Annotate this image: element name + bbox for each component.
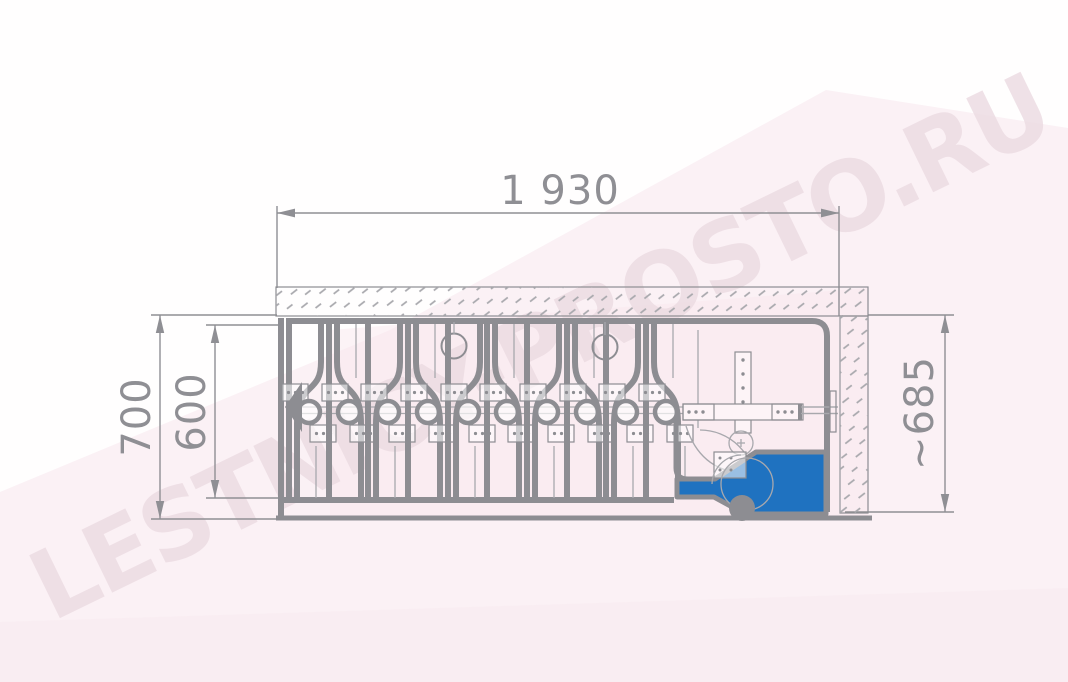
pivot-knob: [729, 495, 755, 521]
dimension-inner-height-label: 600: [169, 372, 215, 451]
pivot-plate-vertical: [735, 352, 751, 433]
drawing-canvas: LESTNICY-PROSTO.RU 1 930 700 6: [0, 0, 1068, 682]
dimension-outer-height-label: 700: [114, 377, 160, 456]
dimension-length-label: 1 930: [500, 168, 620, 214]
dimension-approx-height-label: ~685: [897, 356, 943, 470]
ladder-technical-drawing: LESTNICY-PROSTO.RU 1 930 700 6: [0, 0, 1068, 682]
